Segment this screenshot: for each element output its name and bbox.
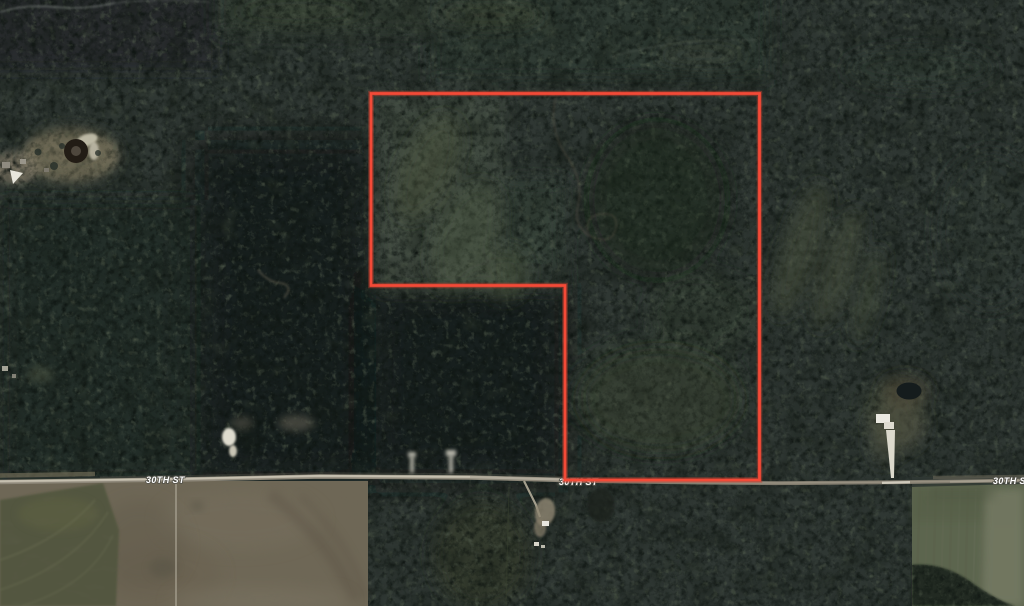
svg-text:30TH ST: 30TH ST xyxy=(146,475,186,485)
svg-text:30TH ST: 30TH ST xyxy=(993,476,1024,486)
